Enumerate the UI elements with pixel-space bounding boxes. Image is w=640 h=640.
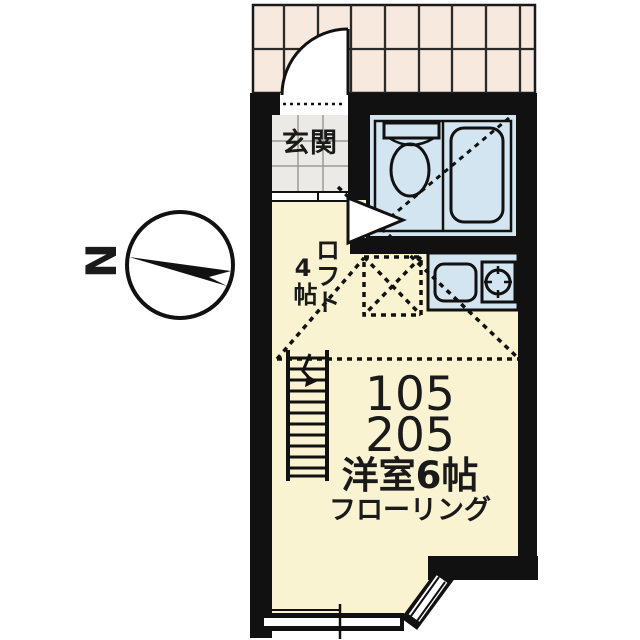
entrance-label: 玄関 xyxy=(272,121,348,160)
wall-left xyxy=(250,93,272,638)
floor-plan-drawing xyxy=(0,0,640,640)
room-name-label: 洋室6帖 xyxy=(310,456,510,496)
unit-number-205: 205 xyxy=(310,415,510,456)
loft-size-label: 4帖 xyxy=(286,254,321,306)
north-compass xyxy=(127,212,233,318)
room-text-block: 105 205 洋室6帖 フローリング xyxy=(310,374,510,526)
north-label: N xyxy=(77,243,126,278)
floor-plan: 玄関 ロフト 4帖 105 205 洋室6帖 フローリング N xyxy=(0,0,640,640)
kitchen-area xyxy=(428,253,518,310)
room-finish-label: フローリング xyxy=(310,496,510,526)
wall-top-right xyxy=(348,93,537,115)
genkan-step xyxy=(272,192,348,201)
wall-bathroom-bottom xyxy=(350,238,537,254)
wall-genkan-bathroom xyxy=(348,113,368,200)
wall-right xyxy=(518,93,537,562)
